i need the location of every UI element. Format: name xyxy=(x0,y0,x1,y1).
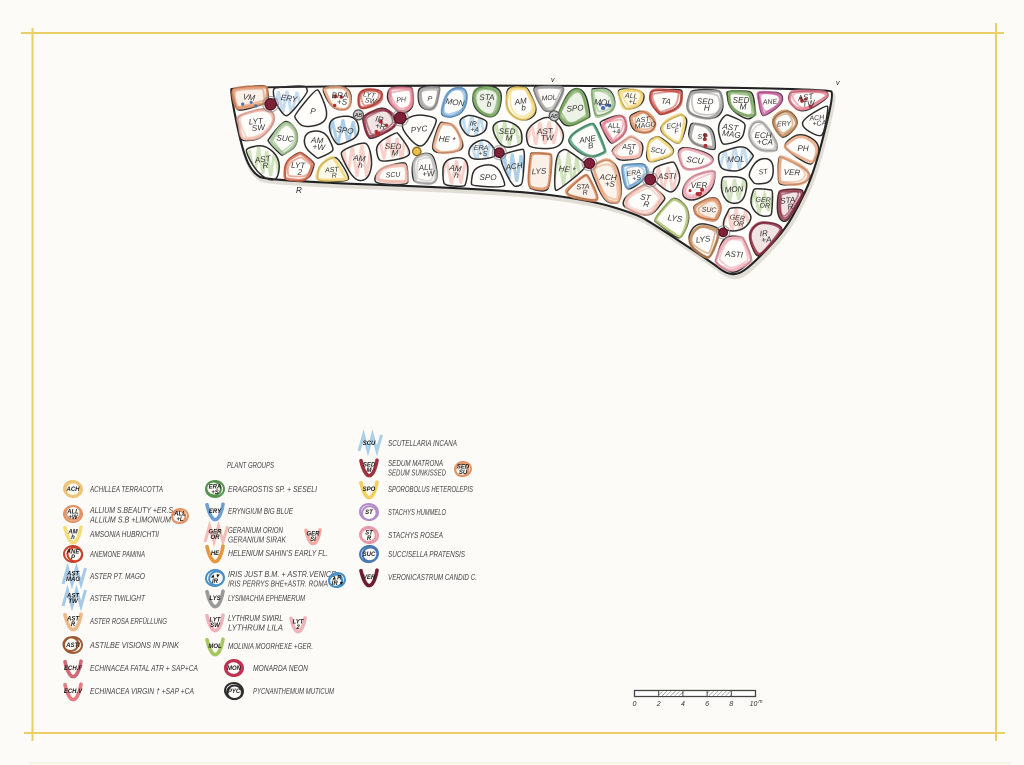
svg-text:6: 6 xyxy=(705,701,709,708)
svg-text:PH: PH xyxy=(396,96,407,104)
svg-text:ANE: ANE xyxy=(762,98,778,106)
svg-text:ECHINACEA VIRGIN † +SAP +CA: ECHINACEA VIRGIN † +SAP +CA xyxy=(90,686,194,696)
svg-text:ECH+CA: ECH+CA xyxy=(754,131,773,147)
svg-text:m: m xyxy=(758,699,762,705)
svg-text:HELENIUM SAHIN’S EARLY FL.: HELENIUM SAHIN’S EARLY FL. xyxy=(228,548,328,558)
svg-text:SUC: SUC xyxy=(363,552,376,558)
svg-text:SEDUM MATRONA: SEDUM MATRONA xyxy=(388,458,443,468)
svg-text:HE: HE xyxy=(211,551,220,557)
svg-text:LYTHRUM SWIRL: LYTHRUM SWIRL xyxy=(228,613,283,623)
svg-text:ASTI: ASTI xyxy=(657,172,677,181)
svg-text:MOL: MOL xyxy=(541,94,557,102)
svg-text:VM: VM xyxy=(242,92,255,102)
svg-text:SUCCISELLA PRATENSIS: SUCCISELLA PRATENSIS xyxy=(388,549,465,559)
svg-text:LYS: LYS xyxy=(209,596,220,602)
svg-text:v: v xyxy=(836,80,840,87)
svg-text:ERY: ERY xyxy=(209,509,222,515)
svg-text:HE *: HE * xyxy=(438,134,456,144)
svg-text:ACHILLEA TERRACOTTA: ACHILLEA TERRACOTTA xyxy=(89,484,163,494)
svg-text:v: v xyxy=(551,77,555,84)
svg-text:PH: PH xyxy=(797,144,809,153)
svg-text:ECH.F: ECH.F xyxy=(64,666,82,672)
svg-text:IRIS PERRYS BHE+ASTR. ROMA: IRIS PERRYS BHE+ASTR. ROMA xyxy=(228,579,328,589)
svg-text:8: 8 xyxy=(729,701,733,708)
svg-text:MON: MON xyxy=(227,666,242,672)
svg-text:MOL: MOL xyxy=(727,155,745,164)
svg-text:PYCNANTHEMUM MUTICUM: PYCNANTHEMUM MUTICUM xyxy=(253,686,334,696)
svg-text:ERAGROSTIS SP. + SESELI: ERAGROSTIS SP. + SESELI xyxy=(228,484,318,494)
svg-text:LYS: LYS xyxy=(695,234,711,245)
svg-text:AMSONIA HUBRICHTII: AMSONIA HUBRICHTII xyxy=(89,529,159,539)
svg-text:MOL: MOL xyxy=(594,98,612,108)
svg-text:MOL: MOL xyxy=(208,644,222,650)
svg-text:STACHYS ROSEA: STACHYS ROSEA xyxy=(388,530,443,540)
svg-text:STACHYS HUMMELO: STACHYS HUMMELO xyxy=(388,507,446,517)
svg-text:MON: MON xyxy=(724,184,744,194)
svg-text:ECHINACEA FATAL ATR + SAP+CA: ECHINACEA FATAL ATR + SAP+CA xyxy=(90,663,198,673)
svg-text:ASTI: ASTI xyxy=(724,249,744,259)
svg-text:SCU: SCU xyxy=(385,171,401,179)
svg-text:ALL+W: ALL+W xyxy=(66,510,79,521)
svg-text:SPOROBOLUS HETEROLEPIS: SPOROBOLUS HETEROLEPIS xyxy=(388,484,473,494)
svg-text:4: 4 xyxy=(681,701,685,708)
svg-text:AB: AB xyxy=(550,114,559,120)
svg-text:SEDUM SUNKISSED: SEDUM SUNKISSED xyxy=(388,468,446,478)
svg-text:LYS: LYS xyxy=(532,167,548,177)
svg-text:GERANIUM SIRAK: GERANIUM SIRAK xyxy=(228,535,286,545)
svg-text:LYSIMACHIA EPHEMERUM: LYSIMACHIA EPHEMERUM xyxy=(228,593,305,603)
svg-text:ERYNGIUM BIG BLUE: ERYNGIUM BIG BLUE xyxy=(228,506,293,516)
svg-text:0: 0 xyxy=(633,701,637,708)
svg-text:R: R xyxy=(296,186,302,195)
svg-text:ACH: ACH xyxy=(66,487,81,493)
svg-text:TA: TA xyxy=(661,97,672,107)
svg-text:ASTER ROSA ERFÜLLUNG: ASTER ROSA ERFÜLLUNG xyxy=(89,616,167,626)
svg-text:SPO: SPO xyxy=(566,103,585,114)
svg-text:ASTILBE VISIONS IN PINK: ASTILBE VISIONS IN PINK xyxy=(89,640,179,650)
svg-text:SUC: SUC xyxy=(701,206,717,214)
svg-text:ANEMONE PAMINA: ANEMONE PAMINA xyxy=(89,549,145,559)
svg-text:ALLIUM S.B +LIMONIUM: ALLIUM S.B +LIMONIUM xyxy=(89,515,171,525)
svg-text:ASTER PT. MAGO: ASTER PT. MAGO xyxy=(89,571,145,581)
svg-text:ASTMAG: ASTMAG xyxy=(66,572,80,583)
svg-text:GERANIUM ORION: GERANIUM ORION xyxy=(228,525,284,535)
svg-text:SPO: SPO xyxy=(363,487,376,493)
svg-text:PYC: PYC xyxy=(228,689,241,695)
svg-text:P: P xyxy=(427,96,433,103)
svg-text:ST: ST xyxy=(758,168,768,176)
svg-text:SPO: SPO xyxy=(479,173,497,182)
svg-text:10: 10 xyxy=(750,701,758,708)
svg-text:ERY: ERY xyxy=(777,120,793,128)
svg-text:VER: VER xyxy=(691,181,708,190)
svg-text:ECH.V: ECH.V xyxy=(64,689,83,695)
svg-text:MONARDA NEON: MONARDA NEON xyxy=(253,663,309,673)
svg-text:2: 2 xyxy=(656,701,661,708)
svg-text:LYTHRUM LILA: LYTHRUM LILA xyxy=(228,623,283,633)
svg-text:ST: ST xyxy=(365,510,374,516)
svg-text:SCU: SCU xyxy=(363,441,376,447)
svg-text:SCUTELLARIA INCANA: SCUTELLARIA INCANA xyxy=(388,438,457,448)
svg-text:HE *: HE * xyxy=(558,164,576,175)
svg-text:VERONICASTRUM CANDID C.: VERONICASTRUM CANDID C. xyxy=(388,572,477,582)
svg-text:ALLIUM S.BEAUTY +ER.S.: ALLIUM S.BEAUTY +ER.S. xyxy=(89,505,175,515)
svg-text:ASTI: ASTI xyxy=(65,643,80,649)
svg-text:ST: ST xyxy=(697,134,707,141)
svg-text:AB: AB xyxy=(354,113,363,119)
svg-text:IRIS JUST B.M. + ASTR.VENICE: IRIS JUST B.M. + ASTR.VENICE xyxy=(228,569,336,579)
svg-text:SUC: SUC xyxy=(276,133,294,143)
svg-text:MOLINIA MOORHEXE +GER.: MOLINIA MOORHEXE +GER. xyxy=(228,641,313,651)
svg-text:PLANT GROUPS: PLANT GROUPS xyxy=(227,461,274,470)
svg-text:VER: VER xyxy=(783,168,800,178)
svg-text:LYS: LYS xyxy=(667,213,683,224)
svg-text:VER: VER xyxy=(363,575,376,581)
svg-text:ASTER TWILIGHT: ASTER TWILIGHT xyxy=(89,593,145,603)
